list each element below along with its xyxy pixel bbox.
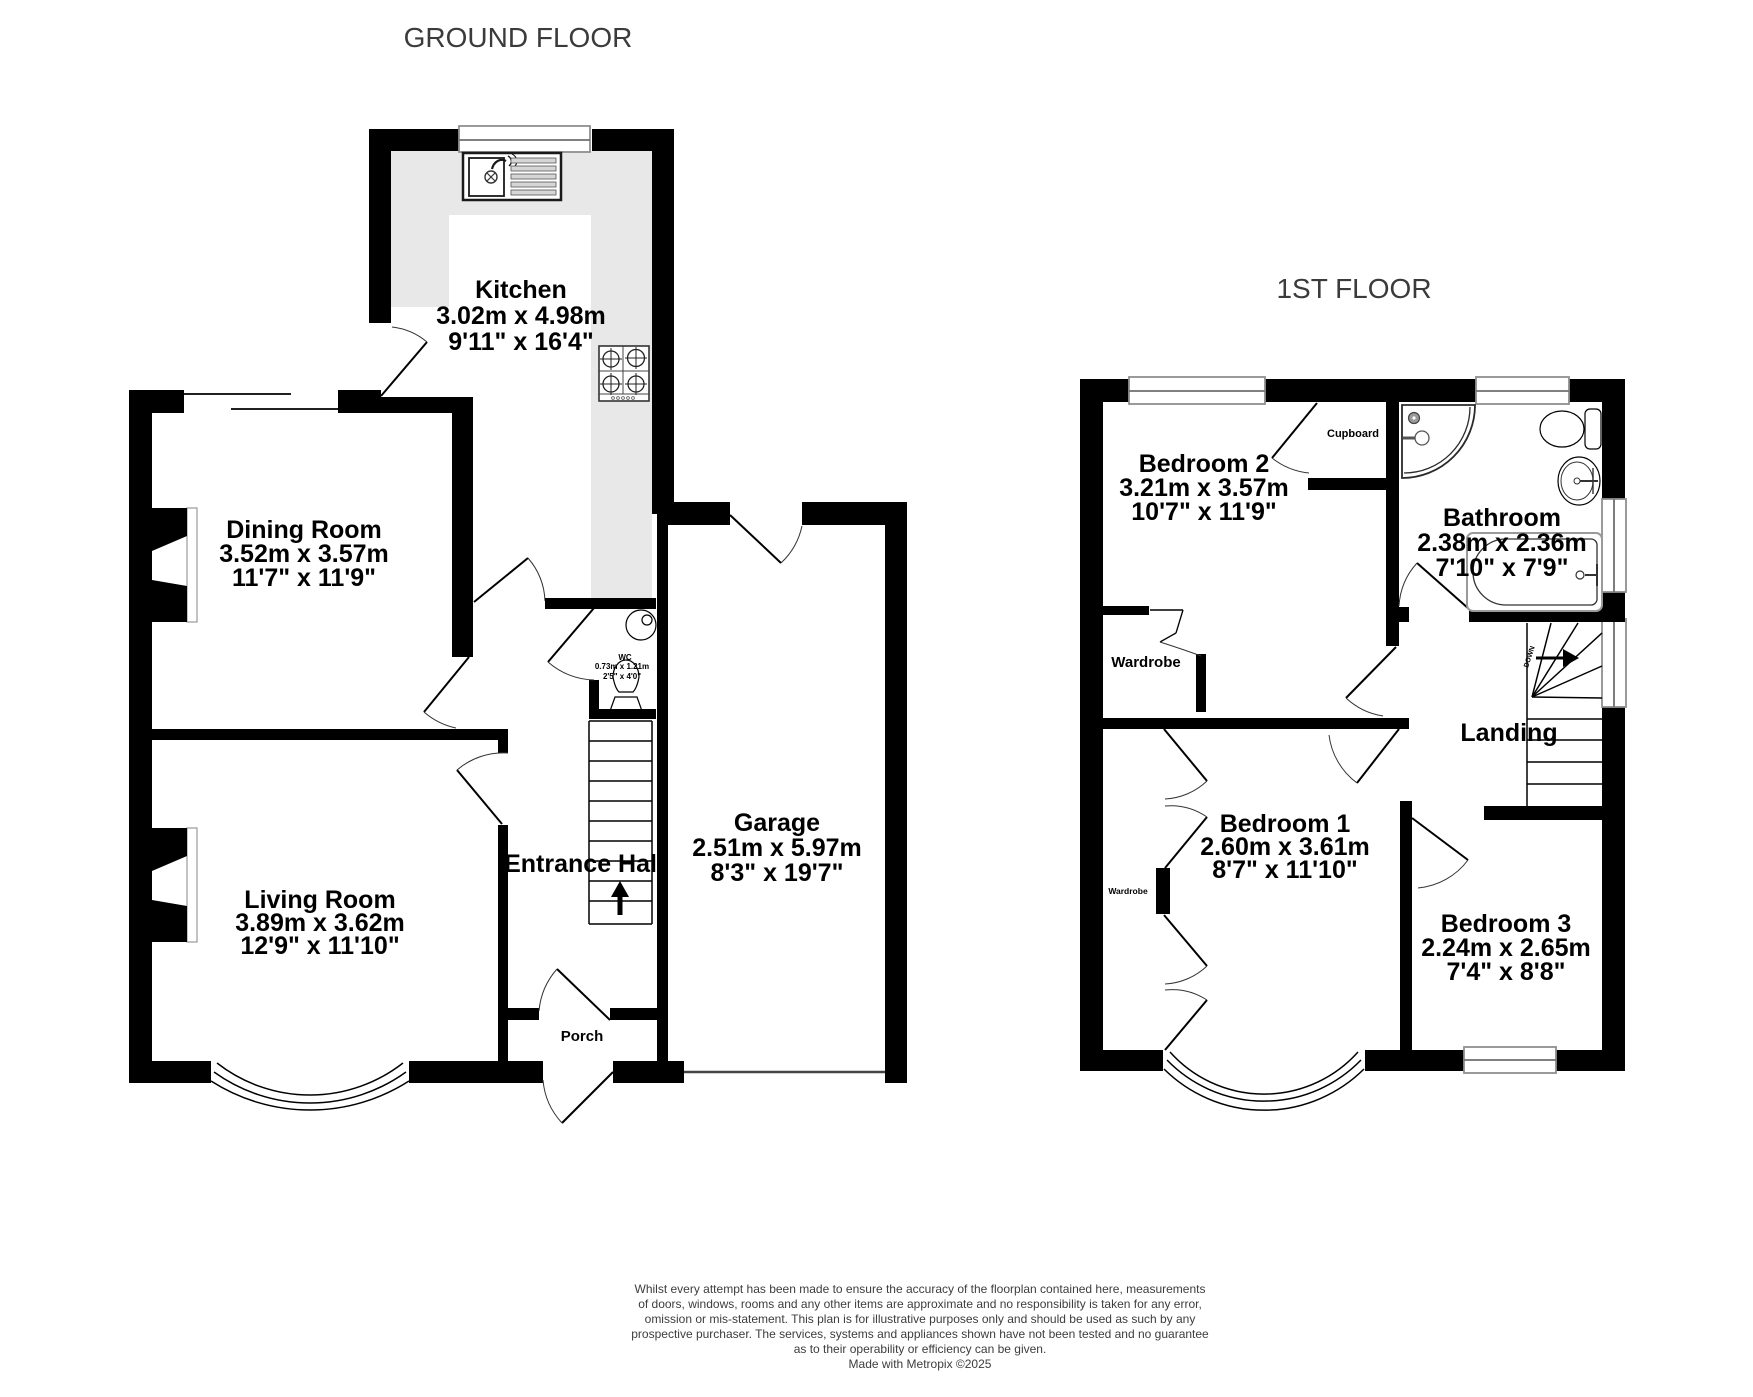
svg-text:Bedroom 12.60m x 3.61m8'7" x 1: Bedroom 12.60m x 3.61m8'7" x 11'10" (1200, 810, 1370, 884)
svg-text:Living Room3.89m x 3.62m12'9": Living Room3.89m x 3.62m12'9" x 11'10" (235, 886, 405, 960)
svg-text:Landing: Landing (1460, 719, 1557, 747)
svg-text:Entrance Hall: Entrance Hall (504, 850, 664, 878)
svg-text:Bedroom 23.21m x 3.57m10'7" x: Bedroom 23.21m x 3.57m10'7" x 11'9" (1119, 450, 1289, 526)
svg-text:0.73m x 1.21m: 0.73m x 1.21m (595, 662, 649, 671)
svg-text:GROUND FLOOR: GROUND FLOOR (404, 22, 633, 53)
svg-text:Porch: Porch (561, 1028, 604, 1045)
svg-text:Bedroom 32.24m x 2.65m7'4" x 8: Bedroom 32.24m x 2.65m7'4" x 8'8" (1421, 910, 1591, 986)
svg-text:WC: WC (618, 653, 632, 662)
svg-text:as to their operability or eff: as to their operability or efficiency ca… (794, 1342, 1047, 1356)
svg-text:omission or mis-statement. Thi: omission or mis-statement. This plan is … (645, 1312, 1196, 1326)
svg-text:1ST FLOOR: 1ST FLOOR (1276, 273, 1431, 304)
svg-text:of doors, windows, rooms and a: of doors, windows, rooms and any other i… (638, 1297, 1202, 1311)
svg-text:Whilst every attempt has been: Whilst every attempt has been made to en… (635, 1282, 1206, 1296)
svg-text:Cupboard: Cupboard (1327, 428, 1379, 440)
svg-text:Made with Metropix ©2025: Made with Metropix ©2025 (849, 1357, 992, 1371)
svg-text:Wardrobe: Wardrobe (1108, 886, 1148, 896)
svg-text:2'5" x 4'0": 2'5" x 4'0" (603, 672, 641, 681)
svg-text:Wardrobe: Wardrobe (1111, 654, 1180, 671)
svg-text:Dining Room3.52m x 3.57m11'7": Dining Room3.52m x 3.57m11'7" x 11'9" (219, 516, 389, 592)
svg-text:prospective purchaser. The ser: prospective purchaser. The services, sys… (631, 1327, 1209, 1341)
